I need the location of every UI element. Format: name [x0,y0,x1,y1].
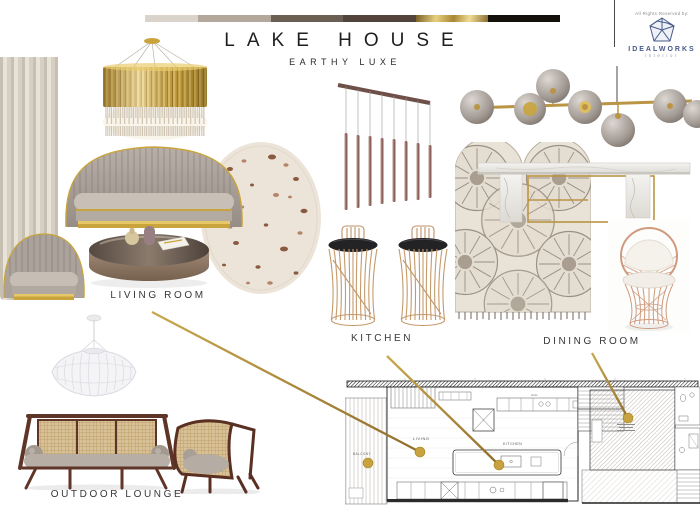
palette-swatch-umber [271,15,343,22]
bar-stool-image [390,224,456,330]
plan-balcony-label: BALCONY [353,452,372,456]
outdoor-bench-image [18,410,176,490]
living-room-label: LIVING ROOM [98,290,218,301]
kitchen-label: KITCHEN [330,333,434,344]
plan-hall-label: HALL [531,393,538,397]
palette-swatch-cream [145,15,198,22]
bar-stool-image [320,224,386,330]
plan-living-label: LIVING [413,436,430,441]
dining-chair-image [608,220,690,332]
outdoor-armchair-image [168,414,264,494]
gold-chandelier-image [95,36,215,148]
dining-table-image [476,160,692,226]
rights-text: All Rights Reserved by: [626,11,698,16]
living-sofa-image [60,139,248,231]
brand-block: All Rights Reserved by: IDEALWORKS inter… [626,11,698,58]
brand-tagline: interior [626,53,698,58]
floor-plan: BALCONY [345,378,700,518]
coffee-table-image [86,226,212,290]
palette-swatch-black [488,15,560,22]
kitchen-pendant-image [332,80,456,215]
dining-chandelier-image [455,60,700,150]
dining-room-label: DINING ROOM [536,336,648,347]
divider-line [614,0,615,47]
brand-name: IDEALWORKS [626,46,698,53]
plan-kitchen-label: KITCHEN [503,442,522,446]
brand-logo-icon [647,17,677,45]
palette-swatch-dark-brown [343,15,416,22]
mood-board: LAKE HOUSE EARTHY LUXE All Rights Reserv… [0,0,700,525]
living-armchair-image [0,226,88,302]
outdoor-lounge-label: OUTDOOR LOUNGE [46,489,188,500]
outdoor-pendant-image [44,310,144,405]
color-palette-bar [145,15,560,22]
palette-swatch-gold [416,15,488,22]
palette-swatch-taupe [198,15,271,22]
